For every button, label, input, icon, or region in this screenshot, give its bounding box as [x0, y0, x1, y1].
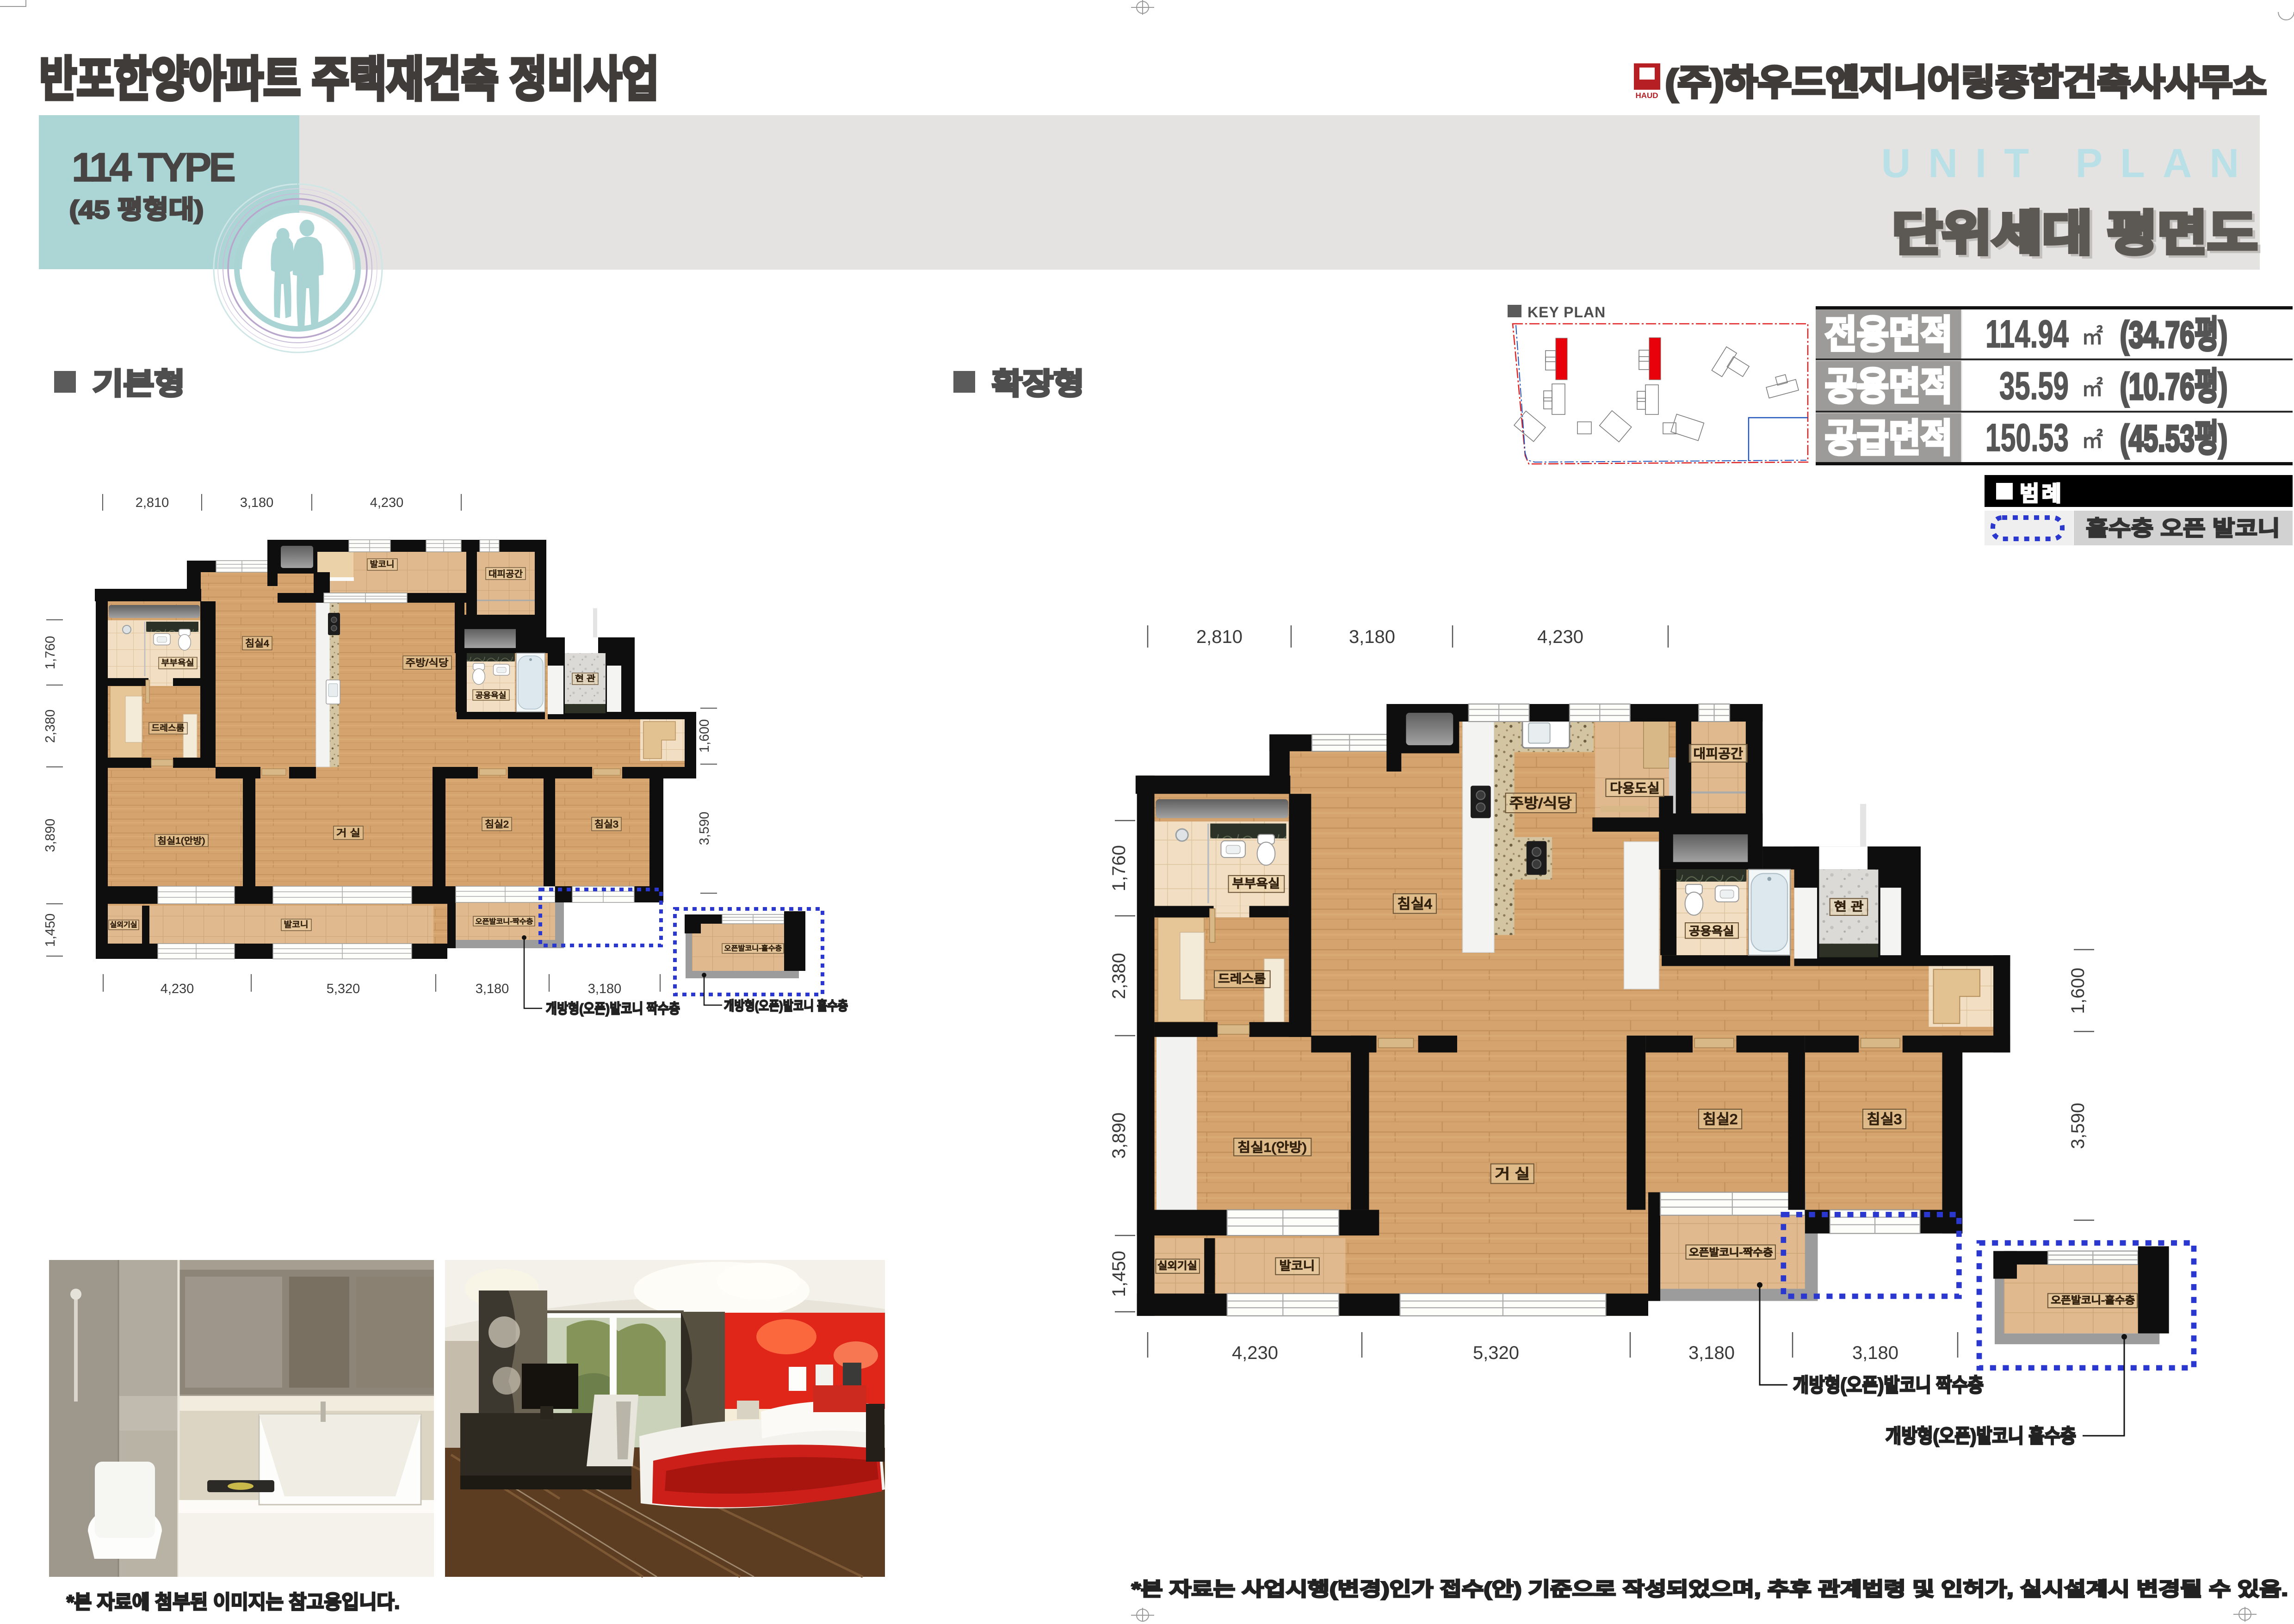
- svg-text:35.59: 35.59: [1999, 364, 2069, 408]
- svg-text:(34.76평): (34.76평): [2120, 314, 2227, 355]
- svg-text:단위세대 평면도: 단위세대 평면도: [1892, 207, 2257, 260]
- svg-text:1,450: 1,450: [43, 914, 58, 947]
- svg-text:침실3: 침실3: [1867, 1111, 1902, 1127]
- svg-text:3,180: 3,180: [1852, 1343, 1898, 1363]
- svg-text:침실4: 침실4: [245, 638, 269, 649]
- svg-text:기본형: 기본형: [93, 367, 185, 401]
- svg-text:오픈발코니-홀수층: 오픈발코니-홀수층: [724, 945, 782, 952]
- svg-text:㎡: ㎡: [2082, 377, 2103, 401]
- svg-text:4,230: 4,230: [161, 982, 194, 996]
- svg-text:3,180: 3,180: [1349, 627, 1395, 647]
- svg-text:침실4: 침실4: [1397, 896, 1433, 912]
- svg-text:4,230: 4,230: [1232, 1343, 1278, 1363]
- svg-text:1,600: 1,600: [697, 719, 712, 753]
- svg-text:부부욕실: 부부욕실: [161, 658, 194, 667]
- svg-text:부부욕실: 부부욕실: [1232, 877, 1280, 890]
- svg-text:현 관: 현 관: [1834, 900, 1863, 914]
- svg-text:㎡: ㎡: [2082, 325, 2103, 349]
- svg-text:오픈발코니-짝수층: 오픈발코니-짝수층: [1689, 1247, 1773, 1258]
- svg-text:침실2: 침실2: [1703, 1111, 1738, 1127]
- svg-text:(10.76평): (10.76평): [2120, 366, 2227, 407]
- svg-text:대피공간: 대피공간: [1693, 747, 1743, 761]
- svg-text:㎡: ㎡: [2082, 428, 2103, 452]
- svg-text:공용욕실: 공용욕실: [1689, 925, 1734, 938]
- svg-text:발코니: 발코니: [284, 920, 309, 929]
- svg-text:개방형(오픈)발코니 홀수층: 개방형(오픈)발코니 홀수층: [724, 999, 848, 1013]
- svg-text:거 실: 거 실: [1495, 1166, 1530, 1182]
- svg-text:*본 자료는 사업시행(변경)인가 접수(안) 기준으로: *본 자료는 사업시행(변경)인가 접수(안) 기준으로 작성되었으며, 추후 …: [1132, 1578, 2288, 1600]
- svg-text:4,230: 4,230: [1537, 627, 1583, 647]
- svg-text:개방형(오픈)발코니 홀수층: 개방형(오픈)발코니 홀수층: [1886, 1425, 2076, 1447]
- svg-text:2,810: 2,810: [1196, 627, 1243, 647]
- svg-text:공용면적: 공용면적: [1825, 365, 1953, 408]
- svg-text:2,810: 2,810: [136, 495, 169, 510]
- svg-text:3,890: 3,890: [1109, 1112, 1129, 1159]
- svg-text:공용욕실: 공용욕실: [476, 691, 507, 700]
- svg-text:드레스룸: 드레스룸: [152, 723, 185, 733]
- svg-text:4,230: 4,230: [370, 495, 404, 510]
- svg-text:개방형(오픈)발코니 짝수층: 개방형(오픈)발코니 짝수층: [1793, 1374, 1984, 1396]
- svg-text:발코니: 발코니: [370, 560, 395, 569]
- svg-text:(주)하우드엔지니어링종합건축사사무소: (주)하우드엔지니어링종합건축사사무소: [1665, 63, 2267, 103]
- svg-text:(45.53평): (45.53평): [2120, 418, 2227, 459]
- svg-text:발코니: 발코니: [1279, 1259, 1315, 1272]
- svg-text:실외기실: 실외기실: [1157, 1260, 1197, 1272]
- svg-text:UNIT PLAN: UNIT PLAN: [1881, 140, 2257, 186]
- svg-text:공급면적: 공급면적: [1825, 417, 1953, 460]
- svg-text:HAUD: HAUD: [1635, 91, 1658, 100]
- svg-text:확장형: 확장형: [992, 367, 1084, 401]
- svg-text:침실2: 침실2: [485, 819, 509, 830]
- svg-text:150.53: 150.53: [1985, 416, 2069, 459]
- svg-text:침실1(안방): 침실1(안방): [1237, 1140, 1307, 1155]
- svg-text:3,590: 3,590: [2068, 1103, 2088, 1149]
- svg-text:1,450: 1,450: [1109, 1251, 1129, 1297]
- svg-text:홀수층 오픈 발코니: 홀수층 오픈 발코니: [2086, 516, 2280, 540]
- svg-text:침실1(안방): 침실1(안방): [158, 836, 205, 846]
- svg-text:3,890: 3,890: [43, 819, 58, 852]
- svg-text:반포한양아파트 주택재건축 정비사업: 반포한양아파트 주택재건축 정비사업: [39, 53, 659, 106]
- svg-text:다용도실: 다용도실: [1610, 781, 1660, 795]
- svg-text:2,380: 2,380: [43, 710, 58, 743]
- svg-text:개방형(오픈)발코니 짝수층: 개방형(오픈)발코니 짝수층: [546, 1001, 680, 1017]
- svg-text:주방/식당: 주방/식당: [406, 658, 449, 668]
- svg-text:현 관: 현 관: [575, 674, 595, 683]
- svg-text:1,760: 1,760: [1109, 845, 1129, 891]
- svg-text:*본 자료에 첨부된 이미지는 참고용입니다.: *본 자료에 첨부된 이미지는 참고용입니다.: [67, 1591, 400, 1613]
- svg-text:1,600: 1,600: [2068, 968, 2088, 1014]
- svg-text:3,180: 3,180: [1688, 1343, 1735, 1363]
- svg-text:전용면적: 전용면적: [1825, 313, 1953, 356]
- svg-text:거 실: 거 실: [336, 828, 360, 839]
- svg-text:3,180: 3,180: [240, 495, 274, 510]
- svg-text:오픈발코니-짝수층: 오픈발코니-짝수층: [476, 918, 533, 926]
- svg-text:3,590: 3,590: [697, 812, 712, 846]
- svg-text:3,180: 3,180: [476, 982, 509, 996]
- svg-text:114.94: 114.94: [1985, 312, 2069, 356]
- svg-text:3,180: 3,180: [588, 982, 622, 996]
- svg-text:114 TYPE: 114 TYPE: [72, 144, 236, 190]
- svg-text:범 례: 범 례: [2020, 482, 2061, 506]
- svg-text:(45 평형대): (45 평형대): [69, 195, 204, 224]
- svg-text:대피공간: 대피공간: [488, 569, 523, 579]
- svg-text:1,760: 1,760: [43, 636, 58, 670]
- svg-text:드레스룸: 드레스룸: [1218, 972, 1266, 986]
- svg-text:실외기실: 실외기실: [110, 921, 137, 929]
- svg-text:5,320: 5,320: [327, 982, 360, 996]
- svg-text:KEY PLAN: KEY PLAN: [1527, 304, 1606, 321]
- svg-text:오픈발코니-홀수층: 오픈발코니-홀수층: [2051, 1294, 2135, 1306]
- svg-text:5,320: 5,320: [1473, 1343, 1519, 1363]
- svg-text:침실3: 침실3: [594, 819, 618, 830]
- svg-text:주방/식당: 주방/식당: [1509, 796, 1572, 811]
- svg-text:2,380: 2,380: [1109, 953, 1129, 999]
